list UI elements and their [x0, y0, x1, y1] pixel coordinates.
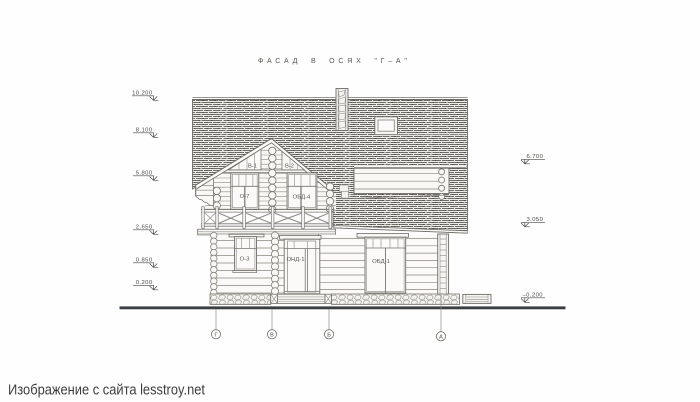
- svg-text:ОБД-1: ОБД-1: [372, 259, 390, 265]
- svg-text:3.050: 3.050: [527, 217, 544, 223]
- svg-text:ОНД-1: ОНД-1: [286, 257, 304, 263]
- svg-text:О-7: О-7: [240, 194, 250, 200]
- svg-text:0.200: 0.200: [136, 280, 153, 286]
- svg-text:ФАСАД В ОСЯХ "Г–А": ФАСАД В ОСЯХ "Г–А": [258, 58, 411, 65]
- svg-text:ОБД-4: ОБД-4: [293, 194, 311, 200]
- svg-text:В: В: [270, 333, 274, 339]
- svg-text:Г: Г: [215, 333, 218, 339]
- svg-text:6.700: 6.700: [527, 154, 544, 160]
- svg-text:А: А: [439, 335, 443, 341]
- svg-text:В-1: В-1: [248, 163, 257, 169]
- svg-text:Б: Б: [327, 333, 331, 339]
- svg-text:0.850: 0.850: [136, 257, 153, 263]
- svg-text:В-2: В-2: [285, 163, 294, 169]
- svg-text:О-3: О-3: [240, 257, 251, 263]
- svg-text:8.100: 8.100: [136, 127, 153, 133]
- svg-text:2.650: 2.650: [136, 224, 153, 230]
- svg-text:5.800: 5.800: [136, 170, 153, 176]
- svg-text:Изображение с сайта lesstroy.n: Изображение с сайта lesstroy.net: [8, 383, 205, 399]
- svg-text:10.200: 10.200: [132, 90, 153, 96]
- svg-text:–0.200: –0.200: [523, 292, 544, 298]
